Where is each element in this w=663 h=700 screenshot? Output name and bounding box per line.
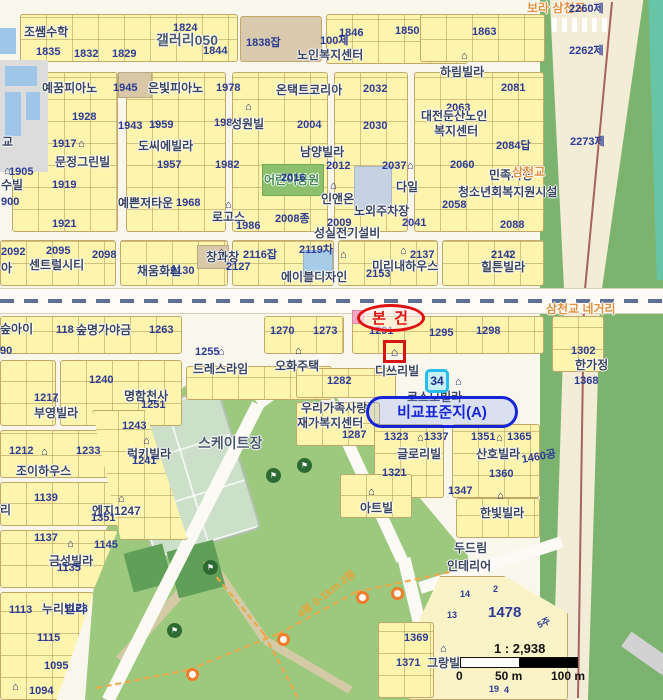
map-label: 도씨에빌라 [138,140,193,152]
map-label: 조이하우스 [16,465,71,477]
map-label: 1917 [52,139,76,150]
map-label: 2012 [326,161,350,172]
building-icon: ⌂ [461,51,468,62]
building-icon: ⌂ [78,139,85,150]
map-label: 수빌 [1,179,23,191]
map-label: 남양빌라 [300,146,344,158]
map-label: 13 [447,611,457,620]
map-label: 드레스라임 [193,363,248,375]
map-label: 디쓰리빌 [375,365,419,377]
map-label: 1943 [118,121,142,132]
map-label: 2008종 [275,214,310,225]
subject-building-marker: ⌂ [383,340,406,363]
map-label: 1217 [34,393,58,404]
map-label: 2262제 [569,46,604,57]
map-label: 인테리어 [447,560,491,572]
building-icon: ⌂ [52,394,59,405]
map-label: 1460공 [521,449,557,466]
map-label: 2041 [402,218,426,229]
map-label: 노외주차장 [354,205,409,217]
map-label: 1287 [342,430,366,441]
map-label: 1321 [382,468,406,479]
map-canvas[interactable]: 조쌤수학1824갤러리05018351832182918441838잡100제1… [0,0,663,700]
map-label: 성원빌 [231,118,264,130]
map-label: 19 [489,685,499,694]
map-label: 1365 [507,432,531,443]
map-label: 5주 [536,616,552,630]
map-label: 1478 [488,605,521,620]
map-label: 1145 [94,540,118,551]
map-label: 1255 [195,347,219,358]
map-label: 1094 [29,686,53,697]
map-label: 한빛빌라 [480,507,524,519]
map-label: 갤러리050 [156,33,218,47]
map-label: 1351 [471,432,495,443]
map-label: 우리가족사랑 [301,402,367,414]
map-label: 에이블디자인 [281,271,347,283]
building-icon: ⌂ [330,181,337,192]
map-label: 오화주택 [275,360,319,372]
map-label: 2273제 [570,137,605,148]
waypoint-marker [277,633,290,646]
building-icon: ⌂ [368,487,375,498]
map-scale-bar [460,657,578,668]
map-label: 1968 [176,198,200,209]
building-icon: ⌂ [4,166,11,177]
building-icon: ⌂ [496,433,503,444]
map-label: 럭키빌라 [127,448,171,460]
building-icon: ⌂ [67,539,74,550]
map-label: 1241 [132,456,156,467]
waypoint-marker [356,591,369,604]
map-label: 성실전기설비 [314,227,380,239]
building-icon: ⌂ [218,247,225,258]
map-label: 2260제 [569,4,604,15]
map-label: 문정그린빌 [55,156,110,168]
map-label: 글로리빌 [397,448,441,460]
building-icon: ⌂ [407,161,414,172]
map-label: 채움화실 [137,265,181,277]
building-icon: ⌂ [118,494,125,505]
building-icon: ⌂ [152,119,159,130]
flag-marker: ⚑ [297,458,312,473]
building-icon: ⌂ [497,491,504,502]
map-label: 교 [2,136,13,148]
map-label: 1323 [384,432,408,443]
map-label: 90 [0,346,12,357]
scale-bar-black-half [519,658,577,667]
map-label: 1115 [37,633,60,644]
map-label: 민족사랑 [489,169,533,181]
map-label: 2137 [410,250,434,261]
map-label: 2130 [170,266,194,277]
flag-marker: ⚑ [266,468,281,483]
map-label: 아 [1,262,12,274]
map-label: 1263 [149,325,173,336]
map-label: 하림빌라 [440,66,484,78]
building-icon: ⌂ [245,102,252,113]
map-label: 2088 [500,220,524,231]
map-labels: 조쌤수학1824갤러리05018351832182918441838잡100제1… [0,0,663,700]
map-label: 1838잡 [246,38,281,49]
map-label: 대전둔산노인 [421,110,487,122]
map-label: 1959 [149,120,173,131]
building-icon: ⌂ [143,436,150,447]
building-icon: ⌂ [295,346,302,357]
map-label: 1982 [215,160,239,171]
map-label: 1282 [327,376,351,387]
map-label: 복지센터 [434,125,478,137]
map-label: 2030 [363,121,387,132]
building-icon: ⌂ [340,250,347,261]
map-label: 재가복지센터 [297,417,363,429]
map-label: 명함천사 [124,390,168,402]
map-label: 1957 [157,160,181,171]
flag-marker: ⚑ [203,560,218,575]
flag-marker: ⚑ [167,623,182,638]
map-label: 2032 [363,84,387,95]
map-label: 4봉 0-1km 2봉 [296,569,358,621]
map-label: 부영빌라 [34,407,78,419]
map-label: 2037 [382,161,406,172]
map-label: 1844 [203,46,227,57]
map-label: 금성빌라 [49,555,93,567]
map-label: 1273 [313,326,337,337]
map-label: 리 [0,504,11,516]
map-label: 아트빌 [360,502,393,514]
map-label: 1371 [396,658,420,669]
map-label: 힐튼빌라 [481,261,525,273]
map-label: 1905 [9,167,33,178]
map-label: 1139 [34,493,58,504]
map-label: 2 [493,585,498,594]
map-label: 2009 [327,218,351,229]
map-label: 미리내하우스 [372,260,438,272]
map-label: 1351 [91,513,115,524]
map-label: 1123 [64,604,88,615]
map-label: 1270 [270,326,294,337]
map-label: 2081 [501,83,525,94]
map-label: 은빛피아노 [148,82,203,94]
map-label: 삼천교 [512,166,545,178]
building-icon: ⌂ [218,347,225,358]
waypoint-marker [391,587,404,600]
map-label: 창과창 [206,251,239,263]
map-label: 2153 [366,269,390,280]
map-label: 1095 [44,661,68,672]
map-label: 1113 [9,605,32,616]
building-icon: ⌂ [506,249,513,260]
building-icon: ⌂ [455,377,462,388]
map-label: 1302 [571,346,595,357]
map-label: 1369 [404,633,428,644]
map-label: 2092 [1,247,25,258]
map-label: 1846 [339,28,363,39]
map-label: 118 [56,325,74,336]
map-label: 노인복지센터 [297,49,363,61]
building-icon: ⌂ [225,200,232,211]
map-label: 청소년회복지원시설 [458,186,557,198]
map-label: 1337 [424,432,448,443]
map-label: 1251 [141,400,165,411]
map-label: 4 [504,686,509,695]
map-label: 2127 [226,262,250,273]
map-label: 1212 [9,446,33,457]
map-label: 1137 [34,533,58,544]
map-label: 숲아이 [0,323,33,335]
map-label: 1829 [112,49,136,60]
map-label: 숲명가야금 [76,324,131,336]
map-label: 1240 [89,375,113,386]
building-icon: ⌂ [12,682,19,693]
map-label: 다일 [396,181,418,193]
map-label: 14 [460,590,470,599]
map-label: 2116잡 [243,250,277,261]
highlighted-parcel [352,310,364,324]
map-label: 2004 [297,120,321,131]
waypoint-marker [186,668,199,681]
map-label: 1986 [236,221,260,232]
map-label: 1919 [52,180,76,191]
map-label: 1835 [36,47,60,58]
map-label: 1295 [429,328,453,339]
map-label: 2058 [442,200,466,211]
map-label: 2016 [281,173,305,184]
map-label: 보라 삼천교 [527,2,586,14]
map-label: 1832 [74,49,98,60]
map-label: 산호빌라 [476,448,520,460]
map-label: 1928 [72,112,96,123]
map-label: 1347 [448,486,472,497]
map-label: 1243 [122,421,146,432]
map-label: 스케이트장 [198,436,262,450]
map-label: 삼천교 네거리 [546,303,616,315]
building-icon: ⌂ [400,246,407,257]
map-label: 1233 [76,446,100,457]
bus-stop-badge: 34 [425,369,449,393]
map-label: 예꿈피아노 [42,82,97,94]
building-icon: ⌂ [417,433,424,444]
building-icon: ⌂ [440,644,447,655]
map-label: 2063 [446,103,470,114]
map-label: 2095 [46,246,70,257]
map-label: 1863 [472,27,496,38]
map-label: 2119차 [299,245,333,256]
map-label: 1135 [57,563,81,574]
map-label: 그랑빌 [427,657,460,669]
building-icon: ⌂ [41,447,48,458]
map-label: 1360 [489,469,513,480]
map-label: 예쁜저타운 [118,197,173,209]
map-label: 1298 [476,326,500,337]
map-label: 엔지1247 [92,505,141,517]
map-label: 1850 [395,26,419,37]
map-label: 2060 [450,160,474,171]
map-label: 1824 [173,23,197,34]
map-label: 로고스 [212,211,245,223]
map-label: 1945 [113,83,137,94]
map-label: 인앤온 [321,193,354,205]
map-label: 2084답 [496,141,531,152]
map-label: 어린이공원 [264,174,319,186]
map-label: 1988 [214,118,238,129]
map-label: 1368 [574,376,598,387]
map-label: 2142 [491,250,515,261]
building-icon: ⌂ [170,263,177,274]
map-label: 조쌤수학 [24,26,68,38]
map-label: 온택트코리아 [276,84,342,96]
map-label: 누리빌라 [42,603,86,615]
map-label: 1291 [369,326,393,337]
map-label: 1978 [216,83,240,94]
map-label: 100제 [320,36,348,47]
map-label: 1921 [52,219,76,230]
map-label: 900 [1,197,19,208]
map-label: 한가정 [575,359,608,371]
map-label: 센트럴시티 [29,259,84,271]
map-label: 두드림 [454,542,487,554]
map-label: 2098 [92,250,116,261]
